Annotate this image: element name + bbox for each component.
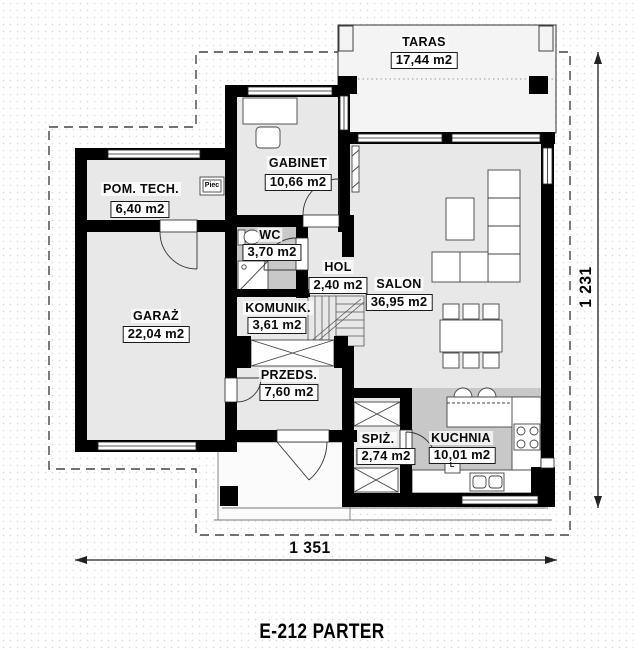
dimension-bottom: 1 351 [289,538,330,558]
room-label-kuchnia: KUCHNIA [429,431,493,445]
doorway-garage-przeds [225,378,237,402]
dining-chair [483,353,499,368]
room-area-wc: 3,70 m2 [242,244,301,261]
room-label-salon: SALON [374,277,423,291]
room-label-hol: HOL [322,260,353,274]
desk [243,98,297,124]
room-area-komunik: 3,61 m2 [247,317,306,334]
porch-post [220,486,238,506]
wall-garage-left [75,148,87,452]
room-label-pomtech: POM. TECH. [101,182,181,196]
room-area-salon: 36,95 m2 [366,294,433,311]
dining-chair [483,304,499,319]
terrace-column-right [529,76,548,94]
room-label-garaz: GARAŻ [131,309,181,323]
wall-pomtech-garage [87,220,225,232]
room-area-taras: 17,44 m2 [391,52,458,69]
furnace-label: Piec [205,182,219,190]
wall-spiz-right-lower [400,462,412,493]
doorway-entrance [277,430,329,442]
floor-plan: TARAS 17,44 m2 POM. TECH. 6,40 m2 GABINE… [0,0,634,649]
room-area-hol: 2,40 m2 [308,277,367,294]
room-area-przeds: 7,60 m2 [259,384,318,401]
fridge-label: L [450,462,454,470]
plan-title: E-212 PARTER [259,620,384,644]
room-label-taras: TARAS [400,35,448,49]
room-label-przeds: PRZEDS. [259,368,319,382]
wall-spiz-top [342,388,412,398]
dimension-right: 1 231 [576,266,596,307]
room-area-kuchnia: 10,01 m2 [429,447,496,464]
dining-chair [463,353,479,368]
room-area-gabinet: 10,66 m2 [265,174,332,191]
room-area-pomtech: 6,40 m2 [110,201,169,218]
wall-spiz-right-upper [400,398,412,430]
wall-spiz-left [342,346,354,493]
room-label-komunik: KOMUNIK. [243,301,313,315]
doorway-gabinet [303,215,339,227]
room-area-spiz: 2,74 m2 [356,448,415,465]
wall-hol-salon [342,215,354,257]
wall-komunik-top [237,289,310,297]
coffee-table [446,198,474,240]
dining-chair [463,304,479,319]
wall-wardrobe-left [237,336,251,368]
desk-chair [256,127,280,148]
window-kitchen-right [541,458,554,468]
room-label-wc: WC [257,228,282,242]
room-label-spiz: SPIŻ. [360,432,397,446]
dining-chair [443,304,459,319]
doorway-pomtech-garage [160,220,197,232]
dining-table [440,320,502,352]
room-label-gabinet: GABINET [267,156,329,170]
room-area-garaz: 22,04 m2 [123,326,190,343]
dining-chair [443,353,459,368]
